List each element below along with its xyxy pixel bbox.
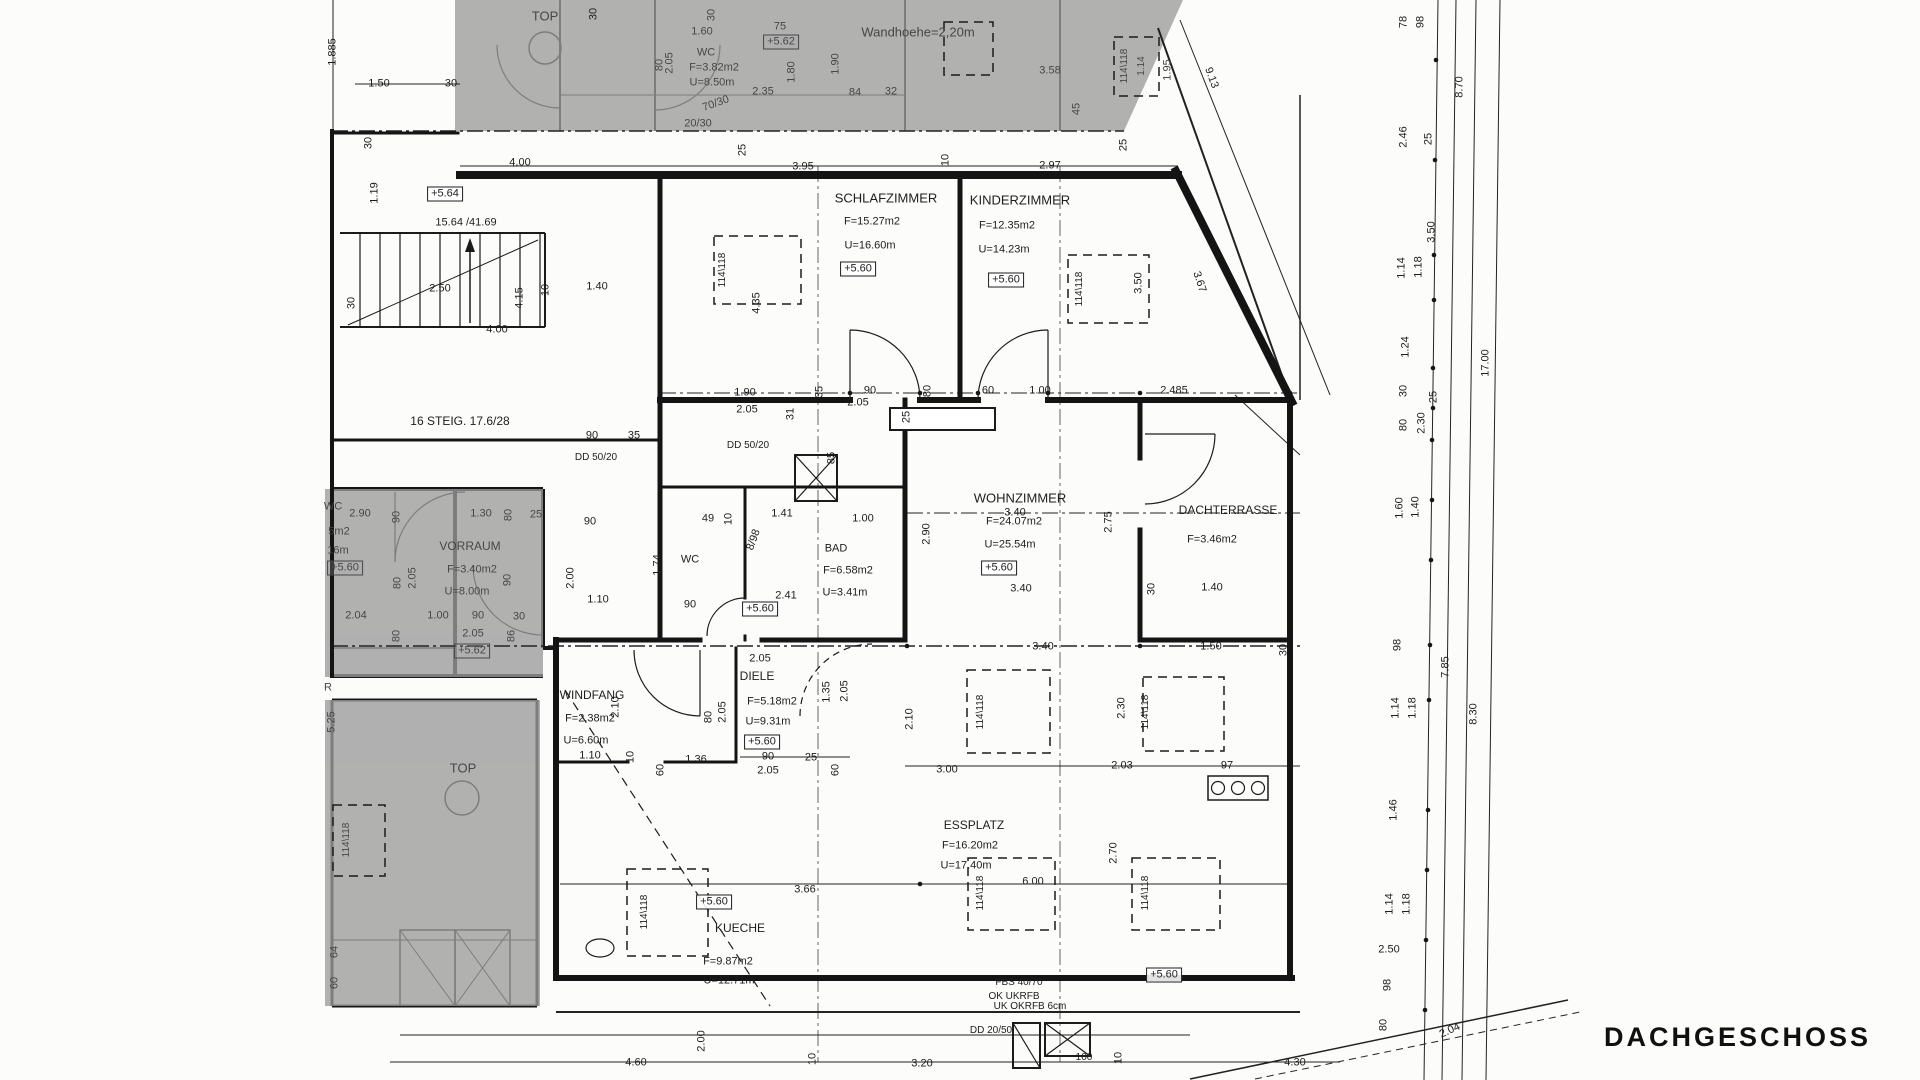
dimension-label: 2.05 — [718, 701, 729, 722]
dimension-label: 78 — [1399, 16, 1410, 28]
dimension-label: 98 — [1393, 639, 1404, 651]
dimension-label: 1.36 — [685, 755, 706, 766]
dimension-label: 25 — [530, 510, 542, 521]
beam-annotation: FBS 40/70 — [995, 978, 1042, 988]
dimension-label: 8/98 — [745, 528, 763, 552]
dimension-label: 45 — [1072, 103, 1083, 115]
dimension-label: 4.30 — [1284, 1058, 1305, 1069]
dimension-label: 3.66 — [794, 885, 815, 896]
room-label: DIELE — [740, 670, 775, 682]
room-stat-label: U=16.60m — [844, 241, 895, 252]
dimension-label: 84 — [849, 88, 861, 99]
dimension-label: 2.97 — [1039, 161, 1060, 172]
dimension-label: 49 — [702, 514, 714, 525]
beam-annotation: DD 50/20 — [575, 453, 617, 463]
roof-window-label: 114\118 — [976, 876, 986, 911]
dimension-label: R — [324, 683, 332, 694]
dimension-label: 1.14 — [1385, 893, 1396, 914]
dimension-label: 25 — [1119, 139, 1130, 151]
roof-window-label: 114\118 — [976, 695, 986, 730]
dimension-label: 90 — [864, 386, 876, 397]
room-stat-label: F=3.40m2 — [447, 565, 497, 576]
dimension-label: 32 — [885, 87, 897, 98]
dimension-label: 3.20 — [911, 1059, 932, 1070]
dimension-label: 10 — [541, 284, 552, 296]
dimension-label: 3.40 — [1010, 584, 1031, 595]
dimension-label: 80 — [393, 577, 404, 589]
dimension-label: 1.40 — [1411, 496, 1422, 517]
dimension-label: 1.00 — [1029, 386, 1050, 397]
dimension-label: 30 — [589, 8, 600, 20]
dimension-label: 3.40 — [1032, 642, 1053, 653]
dimension-label: 25 — [902, 411, 913, 423]
dimension-label: 1.10 — [587, 595, 608, 606]
dimension-label: 10 — [626, 751, 637, 763]
level-annotation: +5.62 — [454, 644, 490, 659]
dimension-label: 4.35 — [752, 292, 763, 313]
dimension-label: 80 — [704, 711, 715, 723]
room-label: ESSPLATZ — [944, 819, 1004, 831]
room-stat-label: F=2.38m2 — [565, 714, 615, 725]
dimension-label: 20/30 — [684, 119, 712, 130]
dimension-label: 2.10 — [905, 708, 916, 729]
dimension-label: 1.18 — [1408, 697, 1419, 718]
room-label: DACHTERRASSE — [1179, 504, 1278, 516]
dimension-label: 1.90 — [831, 53, 842, 74]
dimension-label: 3.00 — [936, 765, 957, 776]
dimension-label: 90 — [472, 611, 484, 622]
dimension-label: 80 — [1399, 419, 1410, 431]
dimension-label: 1.50 — [1200, 642, 1221, 653]
dimension-label: 4.00 — [486, 325, 507, 336]
room-stat-label: U=6.60m — [564, 736, 609, 747]
dimension-label: 2.05 — [847, 398, 868, 409]
dimension-label: 17.00 — [1481, 349, 1492, 377]
room-label: BAD — [825, 544, 848, 555]
dimension-label: 3.58 — [1039, 66, 1060, 77]
dimension-label: 1.46 — [1389, 799, 1400, 820]
dimension-label: 30 — [1279, 644, 1290, 656]
dimension-label: 9.13 — [1202, 66, 1220, 90]
dimension-label: 2.10 — [611, 696, 622, 717]
dimension-label: 1.95 — [1163, 59, 1174, 80]
dimension-label: 25 — [1424, 133, 1435, 145]
dimension-label: 6.00 — [1022, 877, 1043, 888]
dimension-label: 64 — [330, 946, 341, 958]
dimension-label: 2.05 — [840, 680, 851, 701]
room-stat-label: F=6.58m2 — [823, 566, 873, 577]
dimension-label: 35 — [628, 431, 640, 442]
roof-window-label: 114\118 — [342, 823, 352, 858]
dimension-label: 5m2 — [328, 527, 349, 538]
dimension-label: 2.05 — [462, 629, 483, 640]
room-stat-label: U=14.23m — [978, 245, 1029, 256]
dimension-label: 1.24 — [1401, 336, 1412, 357]
level-annotation: +5.60 — [327, 561, 363, 576]
dimension-label: 10 — [724, 513, 735, 525]
dimension-label: 2.75 — [1104, 511, 1115, 532]
dimension-label: 1.40 — [586, 282, 607, 293]
dimension-label: 2.04 — [1438, 1021, 1462, 1040]
room-stat-label: F=24.07m2 — [986, 517, 1042, 528]
room-stat-label: F=3.46m2 — [1187, 535, 1237, 546]
dimension-label: 1.50 — [368, 79, 389, 90]
room-label: SCHLAFZIMMER — [835, 192, 938, 205]
dimension-label: 25 — [1429, 391, 1440, 403]
dimension-label: 1.90 — [734, 388, 755, 399]
level-annotation: +5.60 — [840, 262, 876, 277]
dimension-label: 25 — [805, 753, 817, 764]
room-label: KUECHE — [715, 922, 765, 934]
dimension-label: 85 — [827, 452, 838, 464]
dimension-label: 3.50 — [1427, 221, 1438, 242]
dimension-label: 60 — [330, 977, 341, 989]
dimension-label: 30 — [364, 137, 375, 149]
dimension-label: 10 — [941, 154, 952, 166]
dimension-label: 3.95 — [792, 162, 813, 173]
dimension-label: 70/30 — [701, 94, 731, 114]
room-stat-label: F=15.27m2 — [844, 217, 900, 228]
dimension-label: 4.00 — [509, 158, 530, 169]
dimension-label: 2.41 — [775, 591, 796, 602]
wall-height-annotation: Wandhoehe=2,20m — [861, 26, 974, 39]
dimension-label: 60 — [982, 386, 994, 397]
dimension-label: 1.00 — [427, 611, 448, 622]
dimension-label: 16m — [327, 546, 348, 557]
room-label: TOP — [532, 10, 559, 23]
dimension-label: 2.05 — [408, 567, 419, 588]
dimension-label: 1.14 — [1397, 257, 1408, 278]
dimension-label: 80 — [923, 385, 934, 397]
room-stat-label: U=17.40m — [940, 861, 991, 872]
dimension-label: 1.41 — [771, 509, 792, 520]
level-annotation: +5.60 — [1146, 968, 1182, 983]
level-annotation: +5.60 — [744, 735, 780, 750]
roof-window-label: 114\118 — [640, 895, 650, 930]
dimension-label: 1.18 — [1402, 893, 1413, 914]
dimension-label: 30 — [1399, 385, 1410, 397]
dimension-label: 25 — [738, 144, 749, 156]
roof-window-label: 114\118 — [1075, 272, 1085, 307]
dimension-label: 30 — [513, 612, 525, 623]
room-stat-label: U=12.71m — [703, 976, 754, 987]
dimension-label: 90 — [762, 752, 774, 763]
dimension-label: 2.05 — [736, 405, 757, 416]
dimension-label: 2.03 — [1111, 761, 1132, 772]
dimension-label: 2.30 — [1117, 697, 1128, 718]
dimension-label: 1.885 — [328, 38, 339, 66]
dimension-label: 30 — [347, 297, 358, 309]
room-stat-label: F=9.87m2 — [703, 957, 753, 968]
dimension-label: 2.05 — [749, 654, 770, 665]
dimension-label: 100 — [1076, 1053, 1093, 1063]
room-label: WC — [324, 502, 342, 513]
room-stat-label: U=25.54m — [984, 540, 1035, 551]
dimension-label: 2.46 — [1399, 126, 1410, 147]
dimension-label: 90 — [684, 600, 696, 611]
dimension-label: 1.35 — [822, 681, 833, 702]
room-stat-label: U=3.41m — [823, 588, 868, 599]
dimension-label: 10 — [1114, 1052, 1125, 1064]
dimension-label: 5.25 — [327, 711, 338, 732]
dimension-label: 30 — [445, 79, 457, 90]
dimension-label: 35 — [815, 386, 826, 398]
roof-window-label: 114\118 — [1141, 876, 1151, 911]
dimension-label: 2.35 — [752, 87, 773, 98]
dimension-label: 30 — [707, 9, 718, 21]
floorplan-sheet: 1.8851.5030TOP30+5.6415.64 /41.69301.192… — [0, 0, 1920, 1080]
room-label: KINDERZIMMER — [970, 194, 1070, 207]
room-label: WOHNZIMMER — [974, 492, 1066, 505]
room-stat-label: F=12.35m2 — [979, 221, 1035, 232]
room-stat-label: F=16.20m2 — [942, 841, 998, 852]
dimension-label: 4.15 — [515, 287, 526, 308]
dimension-label: 2.90 — [922, 523, 933, 544]
dimension-label: 2.00 — [566, 567, 577, 588]
room-stat-label: F=5.18m2 — [747, 697, 797, 708]
dimension-label: 8.70 — [1455, 76, 1466, 97]
dimension-label: 1.00 — [852, 514, 873, 525]
room-label: WC — [681, 555, 699, 566]
dimension-label: 2.70 — [1109, 842, 1120, 863]
beam-annotation: DD 20/50 — [970, 1026, 1012, 1036]
level-annotation: +5.62 — [763, 35, 799, 50]
level-annotation: +5.60 — [742, 602, 778, 617]
roof-window-label: 114\118 — [1120, 49, 1130, 84]
room-label: TOP — [450, 762, 477, 775]
room-stat-label: U=9.31m — [746, 717, 791, 728]
dimension-label: 31 — [786, 408, 797, 420]
room-stat-label: U=8.50m — [690, 78, 735, 89]
room-stat-label: U=8.00m — [445, 587, 490, 598]
dimension-label: 30 — [1147, 583, 1158, 595]
stair-annotation: 16 STEIG. 17.6/28 — [410, 415, 509, 427]
dimension-label: 2.90 — [349, 509, 370, 520]
dimension-label: 2.05 — [665, 52, 676, 73]
roof-window-label: 114\118 — [1141, 695, 1151, 730]
plan-title: DACHGESCHOSS — [1604, 1022, 1871, 1053]
dimension-label: 60 — [831, 764, 842, 776]
dimension-label: 75 — [774, 22, 786, 33]
dimension-label: 7.85 — [1441, 656, 1452, 677]
dimension-label: 1.60 — [691, 27, 712, 38]
room-stat-label: F=3.82m2 — [689, 63, 739, 74]
labels-layer: 1.8851.5030TOP30+5.6415.64 /41.69301.192… — [0, 0, 1920, 1080]
dimension-label: 86 — [507, 630, 518, 642]
dimension-label: 60 — [656, 764, 667, 776]
level-annotation: +5.60 — [696, 895, 732, 910]
level-annotation: +5.64 — [427, 187, 463, 202]
dimension-label: 90 — [503, 574, 514, 586]
dimension-label: 97 — [1221, 761, 1233, 772]
room-label: WC — [697, 48, 715, 59]
dimension-label: 1.14 — [1391, 697, 1402, 718]
beam-annotation: DD 50/20 — [727, 441, 769, 451]
dimension-label: 2.05 — [757, 766, 778, 777]
level-annotation: +5.60 — [981, 561, 1017, 576]
dimension-label: 90 — [392, 511, 403, 523]
dimension-label: 3.50 — [1134, 272, 1145, 293]
room-label: VORRAUM — [439, 540, 500, 552]
dimension-label: 2.30 — [1417, 412, 1428, 433]
dimension-label: 1.14 — [1137, 56, 1147, 75]
dimension-label: 80 — [392, 630, 403, 642]
dimension-label: 1.18 — [1414, 256, 1425, 277]
dimension-label: 98 — [1383, 979, 1394, 991]
dimension-label: 2.00 — [697, 1030, 708, 1051]
dimension-label: 80 — [504, 509, 515, 521]
dimension-label: 1.10 — [579, 751, 600, 762]
dimension-label: 8.30 — [1469, 703, 1480, 724]
roof-window-label: 114\118 — [718, 253, 728, 288]
dimension-label: 15.64 /41.69 — [435, 218, 496, 229]
dimension-label: 2.485 — [1160, 386, 1188, 397]
dimension-label: 10 — [808, 1053, 819, 1065]
dimension-label: 2.50 — [429, 284, 450, 295]
dimension-label: 3.67 — [1190, 270, 1207, 294]
dimension-label: 1.60 — [1395, 497, 1406, 518]
dimension-label: 2.50 — [1378, 945, 1399, 956]
dimension-label: 1.74 — [653, 554, 664, 575]
dimension-label: 1.40 — [1201, 583, 1222, 594]
dimension-label: 90 — [584, 517, 596, 528]
dimension-label: 4.60 — [625, 1058, 646, 1069]
beam-annotation: UK OKRFB 6cm — [994, 1002, 1067, 1012]
dimension-label: 90 — [586, 431, 598, 442]
dimension-label: 2.04 — [345, 611, 366, 622]
dimension-label: 98 — [1416, 16, 1427, 28]
dimension-label: 1.80 — [787, 61, 798, 82]
dimension-label: 1.19 — [370, 182, 381, 203]
dimension-label: 1.30 — [470, 509, 491, 520]
level-annotation: +5.60 — [988, 273, 1024, 288]
dimension-label: 80 — [1379, 1019, 1390, 1031]
